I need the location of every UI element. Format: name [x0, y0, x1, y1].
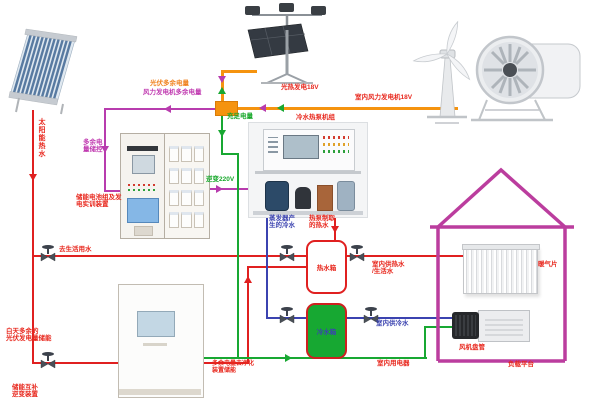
pv-tracker [235, 2, 335, 87]
battery-box [194, 212, 204, 228]
label-wind-excess: 风力发电机多余电量 [143, 89, 202, 96]
battery-box [194, 168, 204, 184]
battery-box [169, 146, 179, 162]
panel-buttons [323, 136, 349, 139]
indicator-lights [128, 189, 157, 191]
label-load-platform: 负载平台 [508, 361, 534, 368]
panel-buttons [323, 150, 349, 153]
label-evaporator-cold: 蒸发器产 生的冷水 [269, 215, 295, 230]
vent-grille [134, 226, 153, 236]
battery-box [169, 168, 179, 184]
radiator-cap [462, 244, 540, 250]
wind-turbine-and-fan [405, 20, 600, 125]
solar-hot-water-pipe [32, 110, 34, 364]
cabinet-screen [132, 155, 155, 174]
flow-arrow [29, 174, 37, 181]
vent-slots [485, 316, 523, 336]
valve-icon [39, 351, 57, 371]
flow-arrow [277, 104, 284, 112]
hot-water-pipe-main [32, 255, 464, 257]
evaporator-cold-pipe [266, 215, 268, 319]
label-chiller-unit: 冷水热泵机组 [296, 114, 335, 121]
flow-arrow [285, 354, 292, 362]
cold-tank-label: 冷水箱 [317, 326, 337, 336]
compressor [295, 187, 311, 209]
label-excess-to-storage: 多余电量去净化 装置储能 [212, 361, 254, 375]
frame-rail [255, 171, 361, 174]
cabinet-screen [137, 311, 175, 337]
hot-water-tank: 热水箱 [306, 240, 347, 294]
label-fan-coil: 风机盘管 [459, 344, 485, 351]
valve-icon [278, 244, 296, 264]
steel-vessel [337, 181, 355, 211]
label-domestic-water: 去生活用水 [59, 246, 92, 253]
label-heatpump-hot: 热泵制取 的热水 [309, 215, 335, 230]
radiator [463, 246, 538, 294]
label-plate [143, 343, 167, 346]
hot-return-pipe [247, 266, 308, 268]
cold-water-tank: 冷水箱 [306, 303, 347, 359]
cabinet-display-strip [127, 146, 158, 151]
valve-icon [348, 244, 366, 264]
label-inverter-220v: 逆变220V [206, 176, 234, 183]
battery-box [181, 168, 191, 184]
panel-buttons [268, 137, 278, 153]
battery-box [169, 212, 179, 228]
copper-heat-exchanger [317, 185, 333, 211]
battery-box [181, 212, 191, 228]
battery-shelf [169, 190, 204, 206]
battery-box [194, 146, 204, 162]
label-excess-storage-ctrl: 多余电量储控 [83, 139, 104, 154]
cabinet-base [119, 389, 201, 395]
label-solar-hot-water: 太阳能热水 [37, 118, 45, 158]
label-indoor-appliances: 室内用电器 [377, 360, 410, 367]
control-cabinet [120, 133, 165, 239]
battery-box [169, 190, 179, 206]
fan-coil-unit [478, 310, 530, 342]
label-pv-generation: 光热发电18V [281, 84, 319, 91]
flow-arrow [164, 105, 171, 113]
flow-arrow [218, 76, 226, 83]
fan-coil-blower [452, 312, 479, 339]
battery-shelf [169, 146, 204, 162]
flow-arrow [218, 87, 226, 94]
label-daytime-excess: 白天多余的 光伏发电量储能 [6, 328, 52, 343]
storage-inverter-cabinet [118, 284, 204, 398]
flow-arrow [216, 185, 223, 193]
label-indoor-wind-generation: 室内风力发电机18V [355, 94, 412, 101]
hot-tank-label: 热水箱 [317, 262, 337, 272]
valve-icon [39, 244, 57, 264]
system-diagram: 热水箱 冷水箱 太阳能热水 光伏多余电量 风力发电机多余电量 光热发电18V 室… [0, 0, 600, 419]
pv-power-wire-drop [221, 70, 224, 102]
grid-wire-main [237, 153, 239, 359]
excess-power-wire [104, 108, 216, 110]
label-pv-excess: 光伏多余电量 [150, 80, 189, 87]
battery-shelf [169, 168, 204, 184]
panel-screen [283, 135, 319, 159]
battery-box [181, 190, 191, 206]
flow-arrow [244, 276, 252, 283]
inverter-module [127, 198, 159, 223]
compressor-tank [265, 181, 289, 211]
label-battery-device: 储能电池组及发 电实训装置 [76, 194, 122, 209]
battery-box [194, 190, 204, 206]
battery-shelf [169, 212, 204, 228]
heat-pump-unit [248, 122, 368, 218]
battery-box [181, 146, 191, 162]
flow-arrow [259, 104, 266, 112]
panel-buttons [323, 143, 349, 146]
inverter-output-wire [208, 188, 250, 190]
valve-icon [278, 306, 296, 326]
label-radiator: 暖气片 [538, 261, 558, 268]
indicator-lights [128, 184, 157, 186]
battery-cabinet [164, 133, 210, 239]
label-storage-inverter: 储能互补 逆变装置 [12, 384, 38, 399]
flow-arrow [218, 130, 226, 137]
label-sufficient-power: 充足电量 [227, 113, 253, 120]
label-indoor-cold-supply: 室内供冷水 [376, 320, 409, 327]
label-indoor-hot-supply: 室内供热水 /生活水 [372, 261, 405, 276]
blower-grille [455, 315, 476, 336]
solar-collector [5, 28, 85, 116]
fancoil-wire-riser [424, 327, 426, 358]
